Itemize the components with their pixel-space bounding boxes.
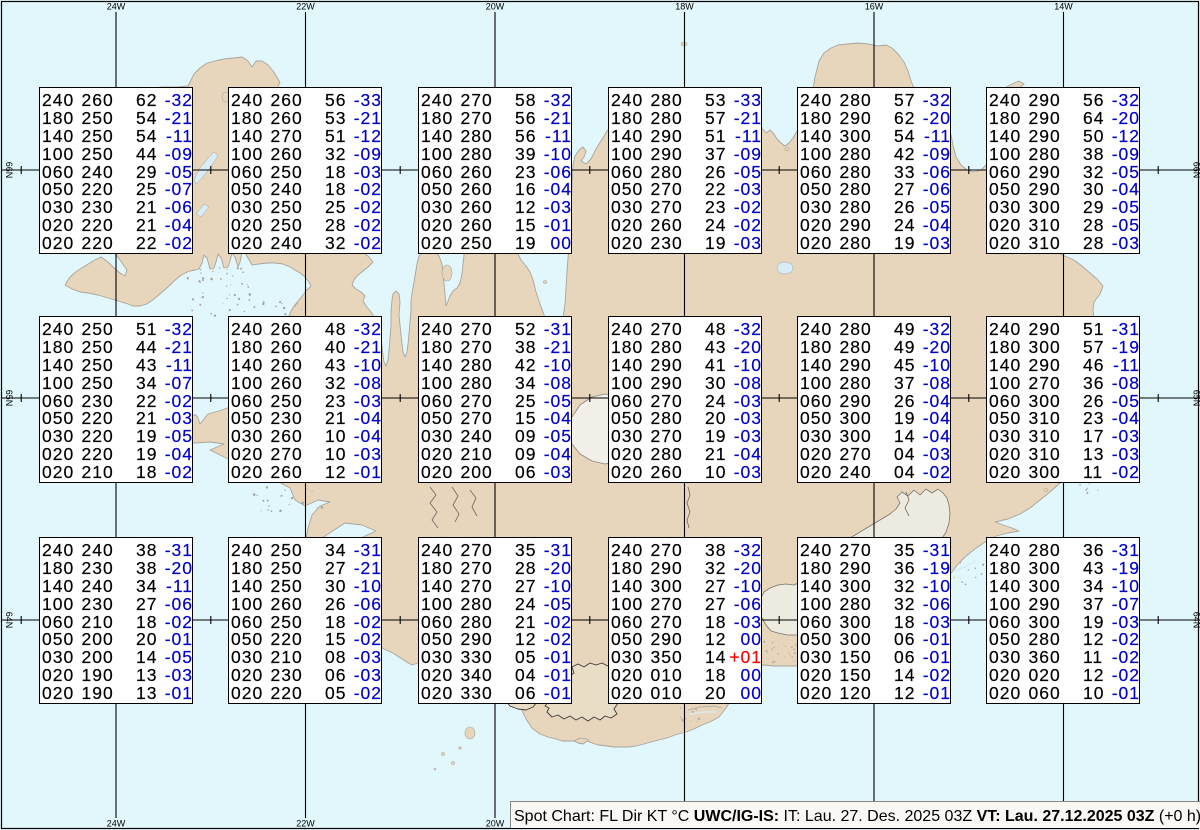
svg-text:66N: 66N: [4, 162, 14, 179]
svg-text:22W: 22W: [296, 819, 315, 829]
svg-text:64N: 64N: [1192, 612, 1200, 629]
svg-text:20W: 20W: [486, 2, 505, 12]
svg-text:16W: 16W: [865, 2, 884, 12]
svg-text:14W: 14W: [1054, 2, 1073, 12]
svg-text:64N: 64N: [4, 612, 14, 629]
svg-text:65N: 65N: [4, 390, 14, 407]
svg-text:65N: 65N: [1192, 390, 1200, 407]
svg-text:20W: 20W: [486, 819, 505, 829]
svg-text:22W: 22W: [296, 2, 315, 12]
svg-text:66N: 66N: [1192, 162, 1200, 179]
svg-text:24W: 24W: [107, 819, 126, 829]
svg-text:24W: 24W: [107, 2, 126, 12]
svg-text:18W: 18W: [675, 2, 694, 12]
